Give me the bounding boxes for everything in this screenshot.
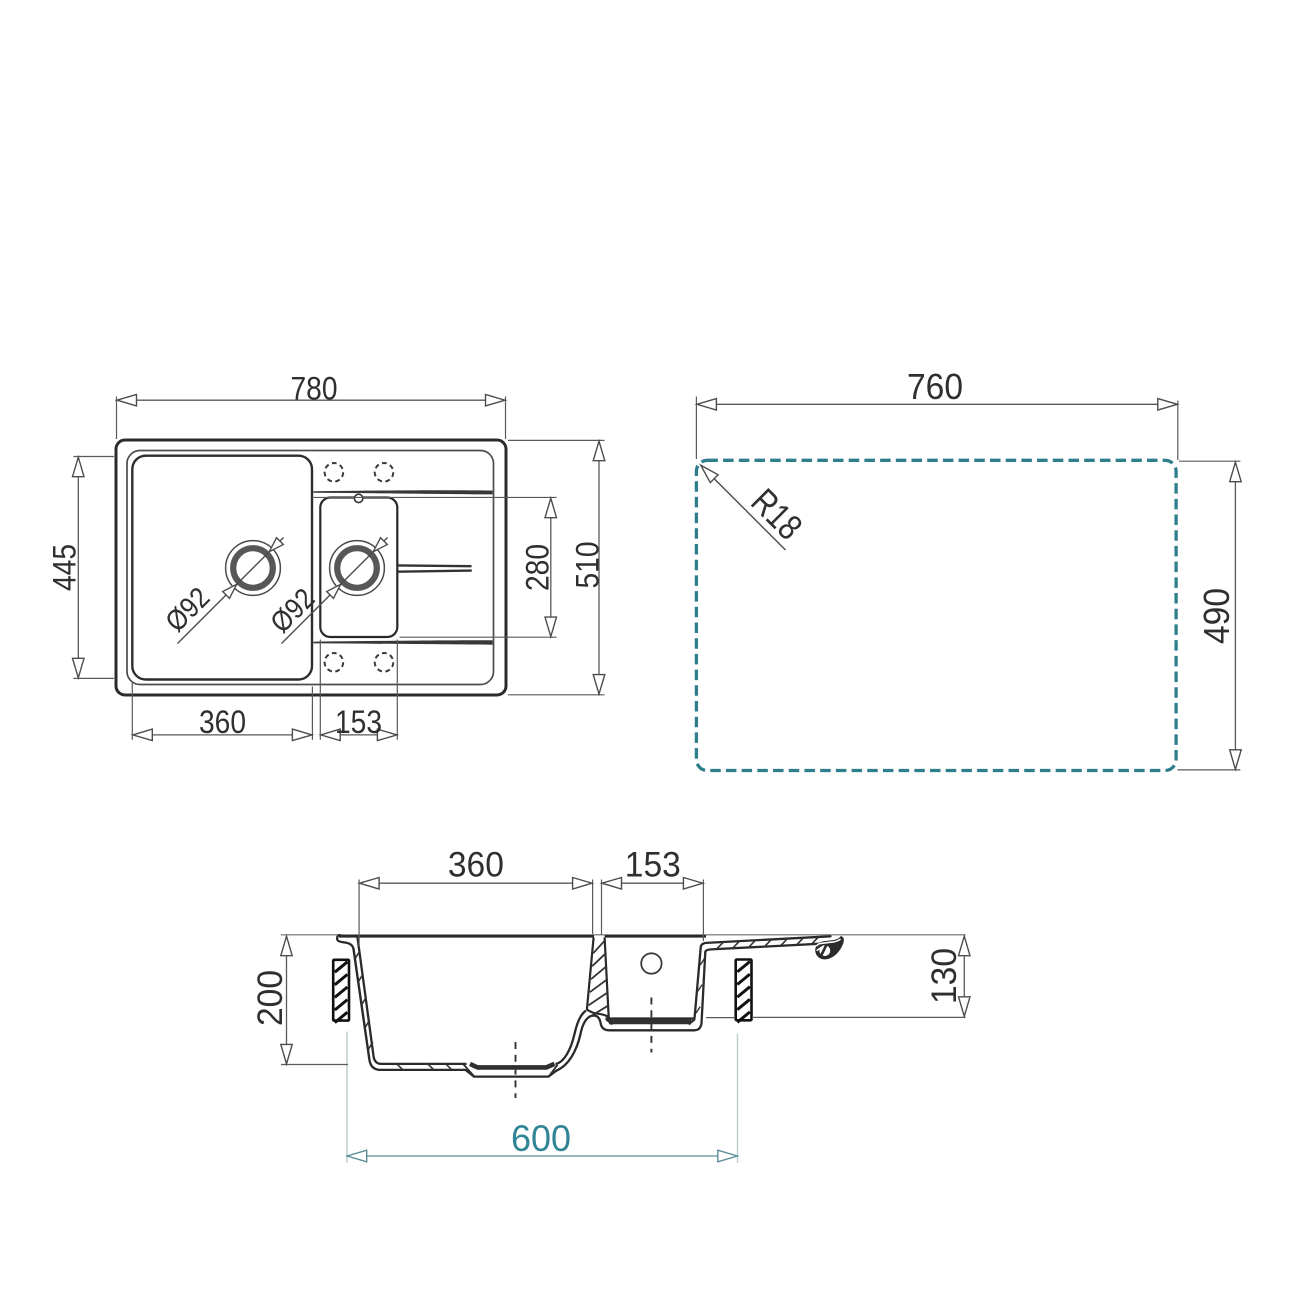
svg-text:200: 200: [251, 970, 290, 1026]
svg-text:360: 360: [199, 704, 246, 740]
svg-text:153: 153: [335, 704, 382, 740]
svg-text:130: 130: [925, 948, 964, 1004]
svg-text:153: 153: [625, 846, 681, 885]
svg-text:780: 780: [291, 371, 338, 407]
svg-text:445: 445: [47, 544, 83, 591]
svg-text:360: 360: [448, 846, 504, 885]
svg-text:600: 600: [511, 1118, 571, 1159]
svg-text:280: 280: [520, 544, 556, 591]
svg-text:490: 490: [1196, 588, 1237, 644]
svg-text:510: 510: [570, 542, 606, 589]
svg-text:760: 760: [907, 366, 963, 407]
